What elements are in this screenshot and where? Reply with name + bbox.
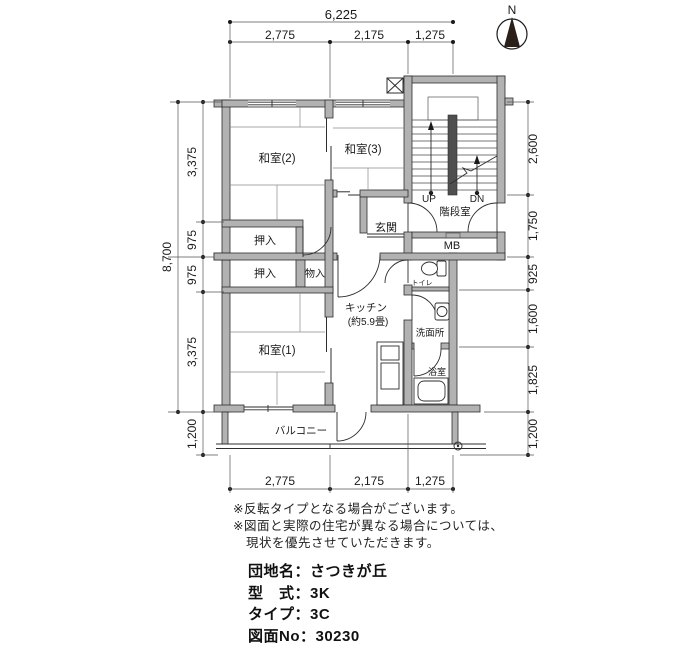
kitchen-counter <box>377 342 403 405</box>
estate-name-row: 団地名：さつきが丘 <box>248 561 388 583</box>
label-meter-box: MB <box>444 240 461 252</box>
stair-divider-wall <box>448 115 457 195</box>
label-oshiire-lower: 押入 <box>254 266 276 280</box>
dim-top-1: 2,775 <box>265 28 295 42</box>
label-washitsu2: 和室(2) <box>258 151 295 165</box>
stair-up-arrow <box>428 121 434 195</box>
dim-left-1: 3,375 <box>185 147 199 177</box>
label-balcony: バルコニー <box>275 425 327 437</box>
drawing-no-row: 図面No：30230 <box>248 626 388 648</box>
disclaimer-notes: ※反転タイプとなる場合がございます。 ※図面と実際の住宅が異なる場合については、… <box>233 501 503 552</box>
dim-top-total: 6,225 <box>325 7 358 22</box>
label-kitchen: キッチン <box>345 302 387 314</box>
dim-right-2: 1,750 <box>526 211 540 241</box>
label-monoire: 物入 <box>305 267 325 280</box>
walls <box>214 76 513 444</box>
label-down: DN <box>470 194 484 205</box>
north-arrow-icon: N <box>497 3 527 49</box>
dim-left-3: 975 <box>185 265 199 285</box>
label-bathroom: 浴室 <box>428 366 446 377</box>
label-washitsu3: 和室(3) <box>344 142 381 156</box>
floor-plan-page: N <box>0 0 700 650</box>
label-stairwell: 階段室 <box>439 205 471 218</box>
dim-top-3: 1,275 <box>415 28 445 42</box>
sink-icon <box>435 303 449 320</box>
balcony-rail <box>216 444 486 449</box>
label-washroom: 洗面所 <box>416 327 445 339</box>
model-row: 型 式：3K <box>248 583 388 605</box>
dim-left-total: 8,700 <box>160 242 174 272</box>
dim-right-1: 2,600 <box>526 134 540 164</box>
dim-left-2: 975 <box>185 230 199 250</box>
label-kitchen-size: (約5.9畳) <box>348 315 389 328</box>
dim-bottom-3: 1,275 <box>415 474 445 488</box>
label-toilet: トイレ <box>412 280 433 287</box>
dim-top-2: 2,175 <box>354 28 384 42</box>
label-oshiire-upper: 押入 <box>254 233 276 247</box>
dim-left-5: 1,200 <box>185 419 199 449</box>
note-line-1: ※反転タイプとなる場合がございます。 <box>233 501 503 518</box>
dim-bottom-2: 2,175 <box>354 474 384 488</box>
dim-right-5: 1,825 <box>526 365 540 395</box>
dim-bottom-1: 2,775 <box>265 474 295 488</box>
note-line-3: 現状を優先させていただきます。 <box>233 535 503 552</box>
stair-down-arrow <box>474 155 480 195</box>
dim-left-4: 3,375 <box>185 337 199 367</box>
bathtub-icon <box>414 378 448 404</box>
label-genkan: 玄関 <box>375 220 397 234</box>
note-line-2: ※図面と実際の住宅が異なる場合については、 <box>233 518 503 535</box>
label-washitsu1: 和室(1) <box>258 343 295 357</box>
type-row: タイプ：3C <box>248 604 388 626</box>
floor-plan-svg: N <box>0 0 700 650</box>
property-info: 団地名：さつきが丘 型 式：3K タイプ：3C 図面No：30230 <box>248 561 388 647</box>
label-up: UP <box>422 194 436 205</box>
shaft-icon <box>387 78 403 93</box>
dim-right-3: 925 <box>526 264 540 284</box>
dim-right-4: 1,600 <box>526 304 540 334</box>
north-label: N <box>508 3 517 17</box>
dim-right-6: 1,200 <box>526 419 540 449</box>
toilet-icon <box>422 261 447 276</box>
